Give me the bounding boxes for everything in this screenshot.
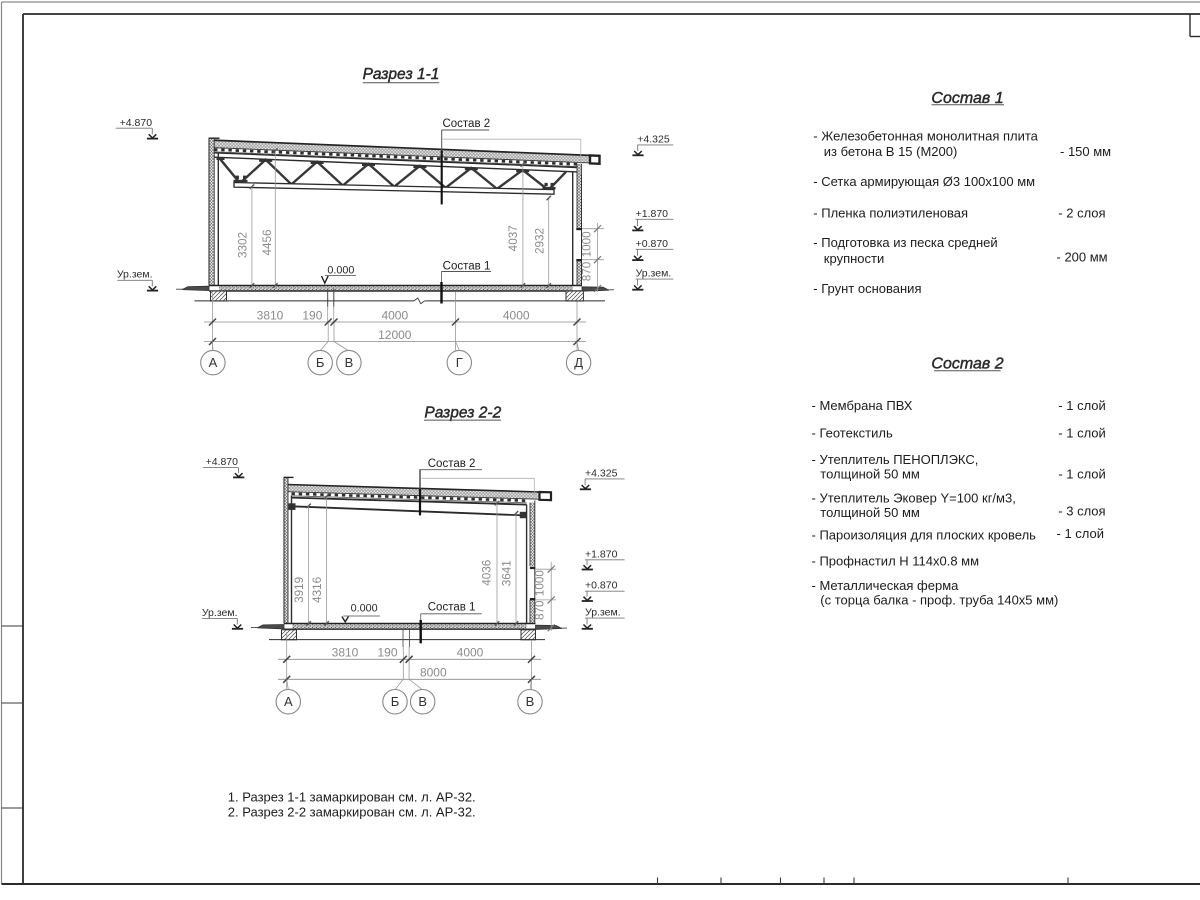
svg-text:- Железобетонная монолитная п: - Железобетонная монолитная плита [813, 129, 1038, 144]
svg-text:3641: 3641 [500, 560, 513, 586]
svg-text:2. Разрез 2-2 замаркирован см.: 2. Разрез 2-2 замаркирован см. л. АР-32. [228, 805, 476, 820]
svg-text:4000: 4000 [381, 308, 408, 322]
svg-text:В: В [345, 355, 354, 370]
svg-text:Ур.зем.: Ур.зем. [202, 607, 238, 619]
svg-text:В: В [526, 694, 535, 709]
svg-text:+4.870: +4.870 [120, 117, 153, 129]
svg-text:8000: 8000 [420, 666, 447, 680]
svg-text:1000: 1000 [580, 231, 593, 258]
svg-text:- 1 слой: - 1 слой [1057, 526, 1105, 541]
svg-text:12000: 12000 [378, 328, 412, 342]
svg-text:А: А [209, 355, 218, 370]
svg-text:870: 870 [580, 261, 593, 281]
svg-text:4316: 4316 [311, 577, 324, 603]
svg-text:+1.870: +1.870 [585, 548, 618, 560]
svg-text:3919: 3919 [293, 577, 306, 603]
svg-text:+0.870: +0.870 [636, 238, 669, 250]
svg-text:Д: Д [574, 355, 583, 370]
svg-text:- Профнастил Н 114х0.8 мм: - Профнастил Н 114х0.8 мм [812, 554, 980, 569]
svg-text:3810: 3810 [332, 646, 359, 660]
svg-text:- Грунт основания: - Грунт основания [813, 281, 921, 296]
svg-text:Ур.зем.: Ур.зем. [117, 269, 153, 281]
svg-text:Ур.зем.: Ур.зем. [585, 607, 621, 619]
svg-text:Б: Б [391, 694, 400, 709]
svg-text:0.000: 0.000 [351, 603, 378, 615]
svg-text:Состав 2: Состав 2 [442, 118, 490, 130]
svg-text:(с торца балка - проф. труба 1: (с торца балка - проф. труба 140х5 мм) [820, 593, 1058, 608]
svg-text:4000: 4000 [457, 646, 484, 660]
svg-text:Ур.зем.: Ур.зем. [636, 268, 672, 280]
svg-text:- Сетка армирующая Ø3 100х100: - Сетка армирующая Ø3 100х100 мм [813, 174, 1035, 189]
svg-text:- Пленка полиэтиленовая: - Пленка полиэтиленовая [813, 206, 968, 221]
svg-text:1000: 1000 [533, 570, 546, 597]
svg-text:- 200 мм: - 200 мм [1057, 250, 1108, 265]
svg-text:4036: 4036 [481, 560, 494, 586]
svg-text:- 1 слой: - 1 слой [1058, 398, 1106, 413]
svg-text:А: А [284, 694, 293, 709]
svg-text:3302: 3302 [237, 232, 250, 258]
svg-text:3810: 3810 [257, 308, 284, 322]
svg-text:- 3 слоя: - 3 слоя [1058, 504, 1105, 519]
svg-text:из бетона В 15 (М200): из бетона В 15 (М200) [824, 144, 958, 159]
svg-text:толщиной 50 мм: толщиной 50 мм [820, 467, 920, 482]
svg-text:- 150 мм: - 150 мм [1060, 144, 1111, 159]
svg-text:Состав 1: Состав 1 [428, 602, 476, 614]
svg-text:4000: 4000 [503, 308, 530, 322]
svg-text:190: 190 [377, 646, 397, 660]
svg-text:+4.325: +4.325 [637, 134, 670, 146]
svg-text:Г: Г [456, 355, 463, 370]
svg-text:- 1 слой: - 1 слой [1058, 426, 1106, 441]
svg-text:2932: 2932 [533, 228, 546, 254]
svg-text:190: 190 [302, 308, 322, 322]
svg-text:+4.325: +4.325 [585, 467, 618, 479]
svg-text:- Мембрана ПВХ: - Мембрана ПВХ [812, 398, 913, 413]
svg-text:Разрез 1-1: Разрез 1-1 [363, 66, 440, 83]
svg-text:Состав 2: Состав 2 [428, 458, 476, 470]
svg-text:- Утеплитель ПЕНОПЛЭКС,: - Утеплитель ПЕНОПЛЭКС, [812, 452, 979, 467]
svg-text:Состав 2: Состав 2 [931, 356, 1003, 373]
svg-text:- Геотекстиль: - Геотекстиль [812, 426, 893, 441]
svg-text:870: 870 [533, 600, 546, 620]
svg-text:- Пароизоляция для плоских кро: - Пароизоляция для плоских кровель [812, 528, 1037, 543]
svg-text:- Утеплитель Эковер Y=100 кг/м: - Утеплитель Эковер Y=100 кг/м3, [812, 491, 1016, 506]
svg-text:Разрез 2-2: Разрез 2-2 [424, 404, 501, 421]
svg-text:0.000: 0.000 [327, 264, 354, 276]
svg-text:В: В [418, 694, 427, 709]
svg-text:Б: Б [316, 355, 325, 370]
svg-text:- 2 слоя: - 2 слоя [1058, 206, 1105, 221]
svg-text:+1.870: +1.870 [636, 208, 669, 220]
svg-text:крупности: крупности [824, 251, 884, 266]
svg-text:- Подготовка из песка средней: - Подготовка из песка средней [813, 235, 997, 250]
svg-text:Состав 1: Состав 1 [443, 261, 491, 273]
svg-text:толщиной 50 мм: толщиной 50 мм [820, 505, 920, 520]
svg-text:1. Разрез 1-1 замаркирован см.: 1. Разрез 1-1 замаркирован см. л. АР-32. [228, 789, 476, 804]
svg-text:4456: 4456 [261, 229, 274, 255]
svg-text:+0.870: +0.870 [585, 580, 618, 592]
svg-text:4037: 4037 [507, 225, 520, 251]
svg-text:- 1 слой: - 1 слой [1058, 467, 1106, 482]
svg-text:- Металлическая ферма: - Металлическая ферма [812, 578, 960, 593]
svg-text:+4.870: +4.870 [206, 456, 239, 468]
